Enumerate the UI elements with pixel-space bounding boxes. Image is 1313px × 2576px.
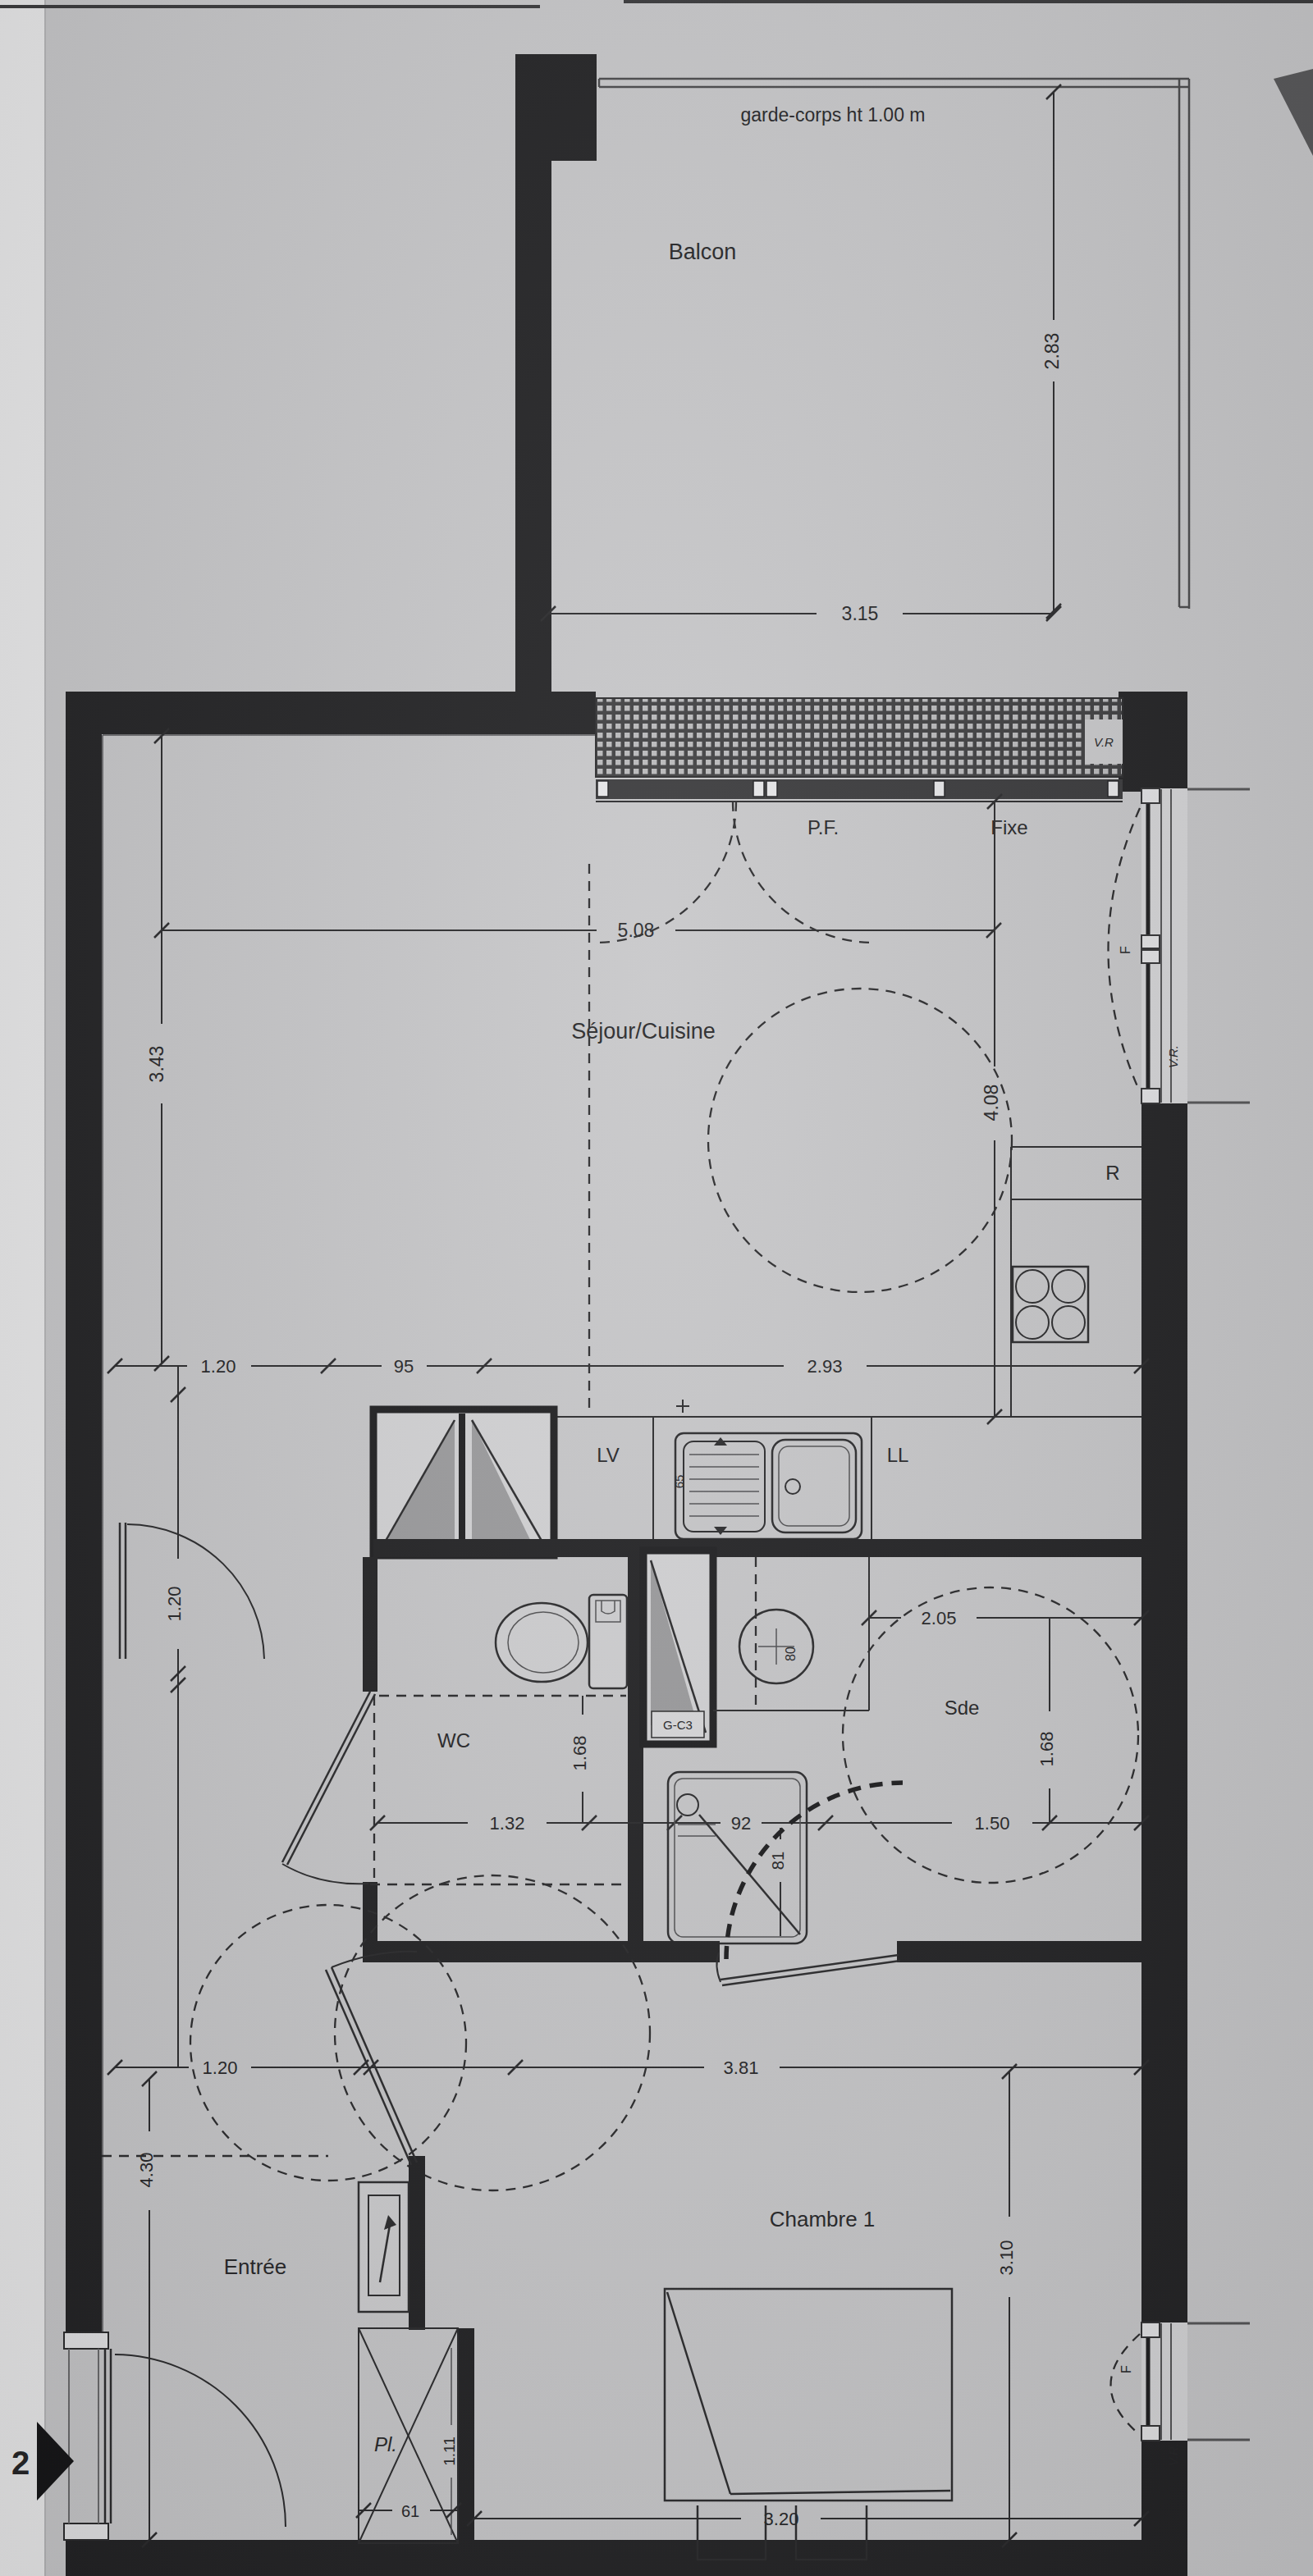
wc-zone: [370, 1696, 626, 1884]
closet: Pl. 1.11 61: [356, 2328, 474, 2543]
door-swing-right: [733, 802, 874, 943]
dim-b-value: 95: [394, 1356, 414, 1377]
hall-height-value: 4.30: [136, 2153, 157, 2188]
railing-note: garde-corps ht 1.00 m: [740, 104, 925, 126]
bedroom-door: [363, 1941, 1143, 1985]
living-right-value: 4.08: [981, 1085, 1002, 1121]
shaft-kitchen: [373, 1409, 554, 1555]
hall-bottom-dims: 1.20 3.81: [108, 2058, 1149, 2078]
wc-room: WC 1.68: [282, 1557, 643, 1943]
tray-width-value: 92: [731, 1813, 751, 1834]
basin-dia-value: 80: [784, 1647, 798, 1661]
living-room: Séjour/Cuisine 5.08 3.43 4.08: [146, 728, 1012, 1424]
living-label: Séjour/Cuisine: [571, 1019, 716, 1044]
bedroom-depth-dim: 3.10: [996, 2064, 1017, 2547]
cooktop: [1013, 1267, 1088, 1342]
window-leaf-label: F: [1119, 946, 1132, 954]
living-left-value: 3.43: [146, 1046, 167, 1083]
living-bottom-dims: 1.20 95 2.93: [108, 1356, 1149, 1377]
block-width-dims: 1.32 92 1.50: [370, 1813, 1149, 1834]
shower-room: 80 Sde 2.05 1.68 1.32 92 1.50 81: [370, 1557, 1149, 1959]
floor-plan-sheet: garde-corps ht 1.00 m Balcon 2.83 3.15 V…: [0, 0, 1313, 2576]
shower-width-value: 2.05: [922, 1608, 957, 1628]
dim-c-value: 2.93: [807, 1356, 843, 1377]
corridor-width-value: 1.20: [164, 1587, 185, 1622]
bedroom-width-value: 3.81: [724, 2058, 759, 2078]
shaft-gc3: G-C3: [643, 1551, 713, 1744]
tray-depth-value: 81: [769, 1852, 787, 1870]
fixed-pane-label: Fixe: [990, 816, 1027, 838]
living-width-dim: 5.08: [154, 920, 1001, 941]
wc-width-value: 1.32: [490, 1813, 525, 1834]
sheet-number: 2: [11, 2445, 30, 2481]
corridor-dim: 1.20: [164, 1366, 185, 2067]
balcony-railing: [599, 79, 1189, 609]
wc-door: [282, 1692, 375, 1884]
sink-depth-value: 65: [672, 1475, 686, 1489]
living-width-value: 5.08: [618, 920, 655, 941]
turning-circle-hall-2: [335, 1875, 650, 2190]
bedroom-depth-value: 3.10: [996, 2240, 1017, 2276]
closet-height-value: 1.11: [441, 2437, 458, 2466]
floor-plan: garde-corps ht 1.00 m Balcon 2.83 3.15 V…: [0, 0, 1313, 2576]
balcony-width-value: 3.15: [842, 603, 879, 624]
living-right-dim: 4.08: [981, 794, 1002, 1424]
window-living: F V.R.: [1109, 788, 1251, 1103]
bedroom-bed-dim: 3.20: [467, 2509, 1149, 2529]
closet-height-dim: 1.11: [441, 2348, 458, 2535]
threshold-shutter-label: V.R: [1094, 735, 1114, 749]
hall-door-dim-value: 1.20: [203, 2058, 238, 2078]
fridge-label: R: [1105, 1162, 1119, 1184]
toilet: [496, 1595, 627, 1688]
wc-depth-dim: 1.68: [570, 1696, 590, 1823]
turning-circle-shower: [843, 1587, 1138, 1883]
sink: 65: [672, 1400, 862, 1539]
page-edge: [0, 0, 1313, 2576]
bed-dim-value: 3.20: [764, 2509, 799, 2529]
clear-width-value: 1.50: [975, 1813, 1010, 1834]
shower-depth-value: 1.68: [1036, 1732, 1057, 1767]
shower-tray: 81: [668, 1772, 807, 1943]
hall-label: Entrée: [224, 2254, 287, 2279]
threshold-window: V.R P.F. Fixe: [595, 698, 1123, 943]
washer-label: LL: [887, 1444, 909, 1466]
window-swing: [1111, 2334, 1141, 2435]
closet-door-value: 61: [401, 2502, 419, 2520]
dishwasher-label: LV: [597, 1444, 620, 1466]
hall: 1.20 3.81 4.30 Entrée 2: [11, 1875, 1149, 2547]
french-window-label: P.F.: [807, 816, 839, 838]
balcony-depth-value: 2.83: [1041, 333, 1063, 370]
living-left-dim: 3.43: [146, 728, 169, 1371]
washbasin: 80: [739, 1557, 813, 1710]
window-leaf-label: F: [1119, 2365, 1133, 2373]
electrical-panel: [359, 2182, 409, 2312]
shower-depth-dim: 1.68: [1036, 1618, 1057, 1830]
closet-label: Pl.: [374, 2433, 397, 2455]
hall-height-dim: 4.30: [136, 2071, 157, 2547]
door-swing-left: [595, 802, 736, 943]
dim-a-value: 1.20: [201, 1356, 236, 1377]
kitchen: R 1.20 95 2.93 LV LL 65: [108, 1147, 1149, 1557]
bedroom: Chambre 1 3.20 3.10: [467, 2064, 1149, 2560]
window-shutter-label: V.R.: [1166, 1045, 1180, 1068]
bedroom-label: Chambre 1: [770, 2207, 876, 2231]
shower-width-dim: 2.05: [862, 1608, 1149, 1628]
entrance-door: [64, 2332, 286, 2540]
shower-room-label: Sde: [945, 1697, 980, 1719]
duct-label: G-C3: [663, 1718, 693, 1732]
window-shutter-label: V.R.: [1166, 2443, 1180, 2466]
wc-depth-value: 1.68: [570, 1736, 590, 1771]
balcony-width-dim: 3.15: [541, 603, 1061, 624]
turning-circle-living: [708, 989, 1012, 1292]
wc-label: WC: [437, 1729, 470, 1752]
hall-door: [120, 1523, 264, 1659]
balcony: garde-corps ht 1.00 m Balcon 2.83 3.15: [515, 54, 1189, 693]
balcony-label: Balcon: [669, 240, 737, 264]
balcony-depth-dim: 2.83: [1041, 84, 1063, 619]
shower-door-swing: [726, 1783, 903, 1959]
